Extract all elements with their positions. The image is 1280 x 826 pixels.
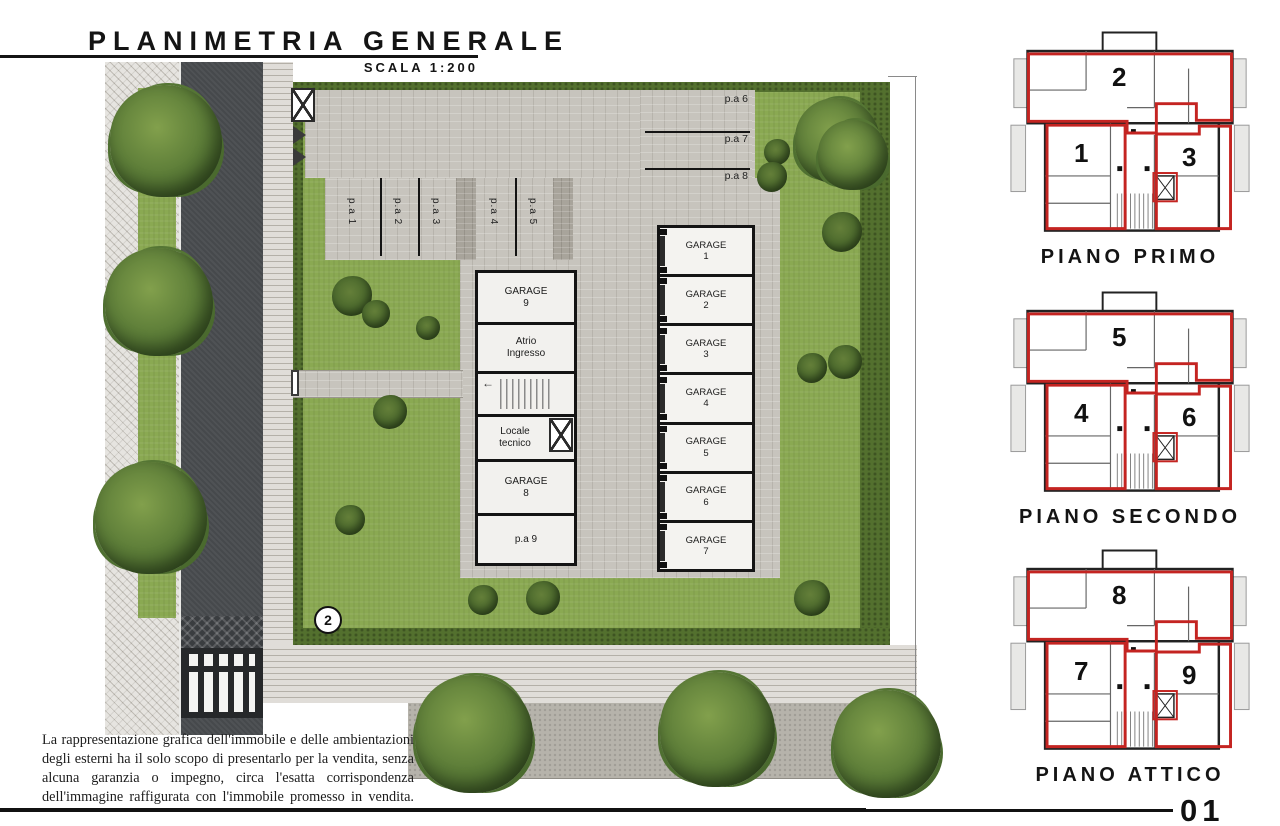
garage-cell: GARAGE6 [660, 474, 752, 523]
footer-rule [866, 809, 1173, 812]
gate-pillar-icon [291, 88, 315, 122]
garden-tree [818, 120, 888, 190]
floorplan-piano-primo: 2 1 3 [1008, 26, 1252, 240]
garage-door-icon [660, 236, 665, 266]
crosswalk-stripes [189, 672, 255, 712]
garage-cell: GARAGE2 [660, 277, 752, 326]
site-plan: p.a 1 p.a 2 p.a 3 p.a 4 p.a 5 p.a 6 p.a … [0, 0, 960, 826]
garage-cell: GARAGE1 [660, 228, 752, 277]
room-garage-8: GARAGE 8 [478, 462, 574, 516]
gate-leaf-icon [293, 148, 306, 166]
unit-number: 5 [1112, 322, 1126, 353]
floorplan-label: PIANO PRIMO [1008, 246, 1252, 269]
garage-door-icon [660, 335, 665, 365]
stall-label: p.a 5 [527, 198, 538, 225]
floorplan-drawing [1008, 26, 1252, 240]
stall-divider [380, 178, 382, 256]
garden-marker-2: 2 [314, 606, 342, 634]
garage-label: GARAGE [686, 240, 727, 251]
walkway-strip [456, 178, 476, 260]
garage-label: GARAGE [686, 485, 727, 496]
stall-label: p.a 4 [488, 198, 499, 225]
room-label: p.a 9 [515, 534, 537, 546]
crosswalk [181, 648, 263, 718]
bottom-sidewalk [263, 645, 917, 703]
garage-cell: GARAGE3 [660, 326, 752, 375]
pedestrian-gate-icon [291, 370, 299, 396]
garage-cell: GARAGE4 [660, 375, 752, 424]
unit-number: 8 [1112, 580, 1126, 611]
street-tree [660, 672, 775, 787]
floorplan-piano-secondo: 5 4 6 [1008, 286, 1252, 500]
garage-door-icon [660, 482, 665, 512]
street-tree [105, 248, 213, 356]
floorplan-label: PIANO ATTICO [1008, 764, 1252, 787]
room-number: 9 [523, 298, 529, 310]
garage-number: 7 [703, 546, 708, 557]
unit-number: 7 [1074, 656, 1088, 687]
garage-number: 3 [703, 349, 708, 360]
unit-number: 3 [1182, 142, 1196, 173]
entrance-path [293, 370, 463, 398]
unit-number: 4 [1074, 398, 1088, 429]
garage-number: 1 [703, 251, 708, 262]
drawing-sheet: PLANIMETRIA GENERALE SCALA 1:200 [0, 0, 1280, 826]
hedge-bottom [293, 628, 890, 645]
stall-divider [418, 178, 420, 256]
street-tree [110, 85, 222, 197]
garage-door-icon [660, 285, 665, 315]
stall-label: p.a 6 [648, 93, 748, 105]
stall-label: p.a 7 [648, 133, 748, 145]
right-sidewalk [263, 62, 293, 645]
floorplan-drawing [1008, 286, 1252, 500]
building-garage-column: GARAGE1 GARAGE2 GARAGE3 GARAGE4 GARAGE5 … [657, 225, 755, 572]
garage-cell: GARAGE7 [660, 523, 752, 569]
garage-number: 2 [703, 300, 708, 311]
sheet-number: 01 [1180, 793, 1224, 826]
unit-number: 9 [1182, 660, 1196, 691]
garage-number: 5 [703, 448, 708, 459]
room-label: GARAGE [505, 286, 548, 298]
garage-label: GARAGE [686, 535, 727, 546]
stall-label: p.a 1 [346, 198, 357, 225]
garage-label: GARAGE [686, 387, 727, 398]
room-atrio-ingresso: Atrio Ingresso [478, 325, 574, 374]
room-number: 8 [523, 488, 529, 500]
garage-door-icon [660, 531, 665, 561]
room-carport-pa9: p.a 9 [478, 516, 574, 563]
stairs-arrow-icon: ← [482, 376, 494, 390]
hedge-left [293, 82, 303, 645]
floorplan-label: PIANO SECONDO [1008, 506, 1252, 529]
gate-leaf-icon [293, 126, 306, 144]
disclaimer-text: La rappresentazione grafica dell'immobil… [42, 731, 414, 807]
garage-number: 4 [703, 398, 708, 409]
street-tree [833, 690, 941, 798]
street-tree [415, 675, 533, 793]
footer-rule [0, 808, 866, 812]
room-label: Atrio Ingresso [497, 336, 555, 360]
garage-door-icon [660, 433, 665, 463]
dimension-line [888, 76, 917, 77]
room-label: GARAGE [505, 476, 548, 488]
room-label: Locale tecnico [487, 426, 543, 450]
street-tree [95, 462, 207, 574]
garage-label: GARAGE [686, 436, 727, 447]
crosswalk-stripes [189, 654, 255, 666]
unit-number: 6 [1182, 402, 1196, 433]
floorplan-piano-attico: 8 7 9 [1008, 544, 1252, 758]
marker-number: 2 [324, 612, 332, 628]
stairs-icon [500, 379, 550, 409]
room-staircase: ← [478, 374, 574, 417]
walkway-strip [553, 178, 573, 260]
stall-label: p.a 8 [648, 170, 748, 182]
elevator-icon [549, 418, 573, 452]
stall-label: p.a 2 [392, 198, 403, 225]
unit-number: 1 [1074, 138, 1088, 169]
stall-label: p.a 3 [430, 198, 441, 225]
garage-label: GARAGE [686, 289, 727, 300]
stall-divider [515, 178, 517, 256]
floorplan-drawing [1008, 544, 1252, 758]
garage-label: GARAGE [686, 338, 727, 349]
garage-number: 6 [703, 497, 708, 508]
dimension-line [915, 76, 916, 779]
garage-door-icon [660, 384, 665, 414]
garage-cell: GARAGE5 [660, 425, 752, 474]
unit-number: 2 [1112, 62, 1126, 93]
room-garage-9: GARAGE 9 [478, 273, 574, 325]
speed-table-hatch [181, 616, 263, 648]
